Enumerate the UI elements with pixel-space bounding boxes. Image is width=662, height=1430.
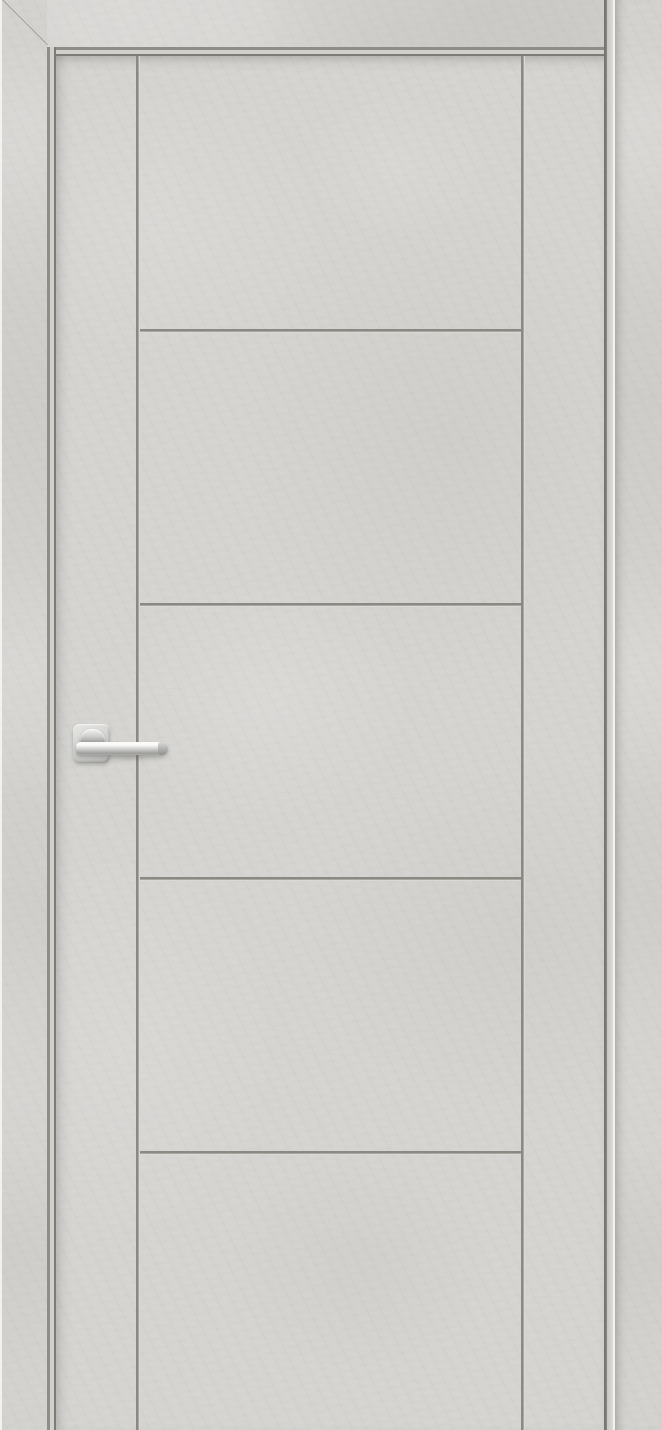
leaf-groove-horizontal-4	[140, 1151, 521, 1155]
leaf-groove-horizontal-1	[140, 329, 521, 333]
jamb-reveal-left	[47, 47, 56, 1430]
door-product-photo	[0, 0, 662, 1430]
left-casing-edge-highlight	[0, 0, 2, 1430]
leaf-panel-1	[140, 56, 521, 329]
leaf-stile-right	[525, 56, 604, 1430]
right-casing	[615, 0, 662, 1430]
leaf-panel-2	[140, 333, 521, 603]
leaf-groove-horizontal-3	[140, 877, 521, 881]
leaf-panel-4	[140, 881, 521, 1151]
jamb-reveal-top	[47, 47, 604, 56]
leaf-groove-horizontal-2	[140, 603, 521, 607]
head-casing	[0, 0, 662, 47]
left-casing	[0, 0, 47, 1430]
leaf-panel-5	[140, 1155, 521, 1430]
leaf-panel-3	[140, 607, 521, 877]
handle-lever	[76, 742, 168, 755]
leaf-groove-vertical-right	[521, 56, 525, 1430]
